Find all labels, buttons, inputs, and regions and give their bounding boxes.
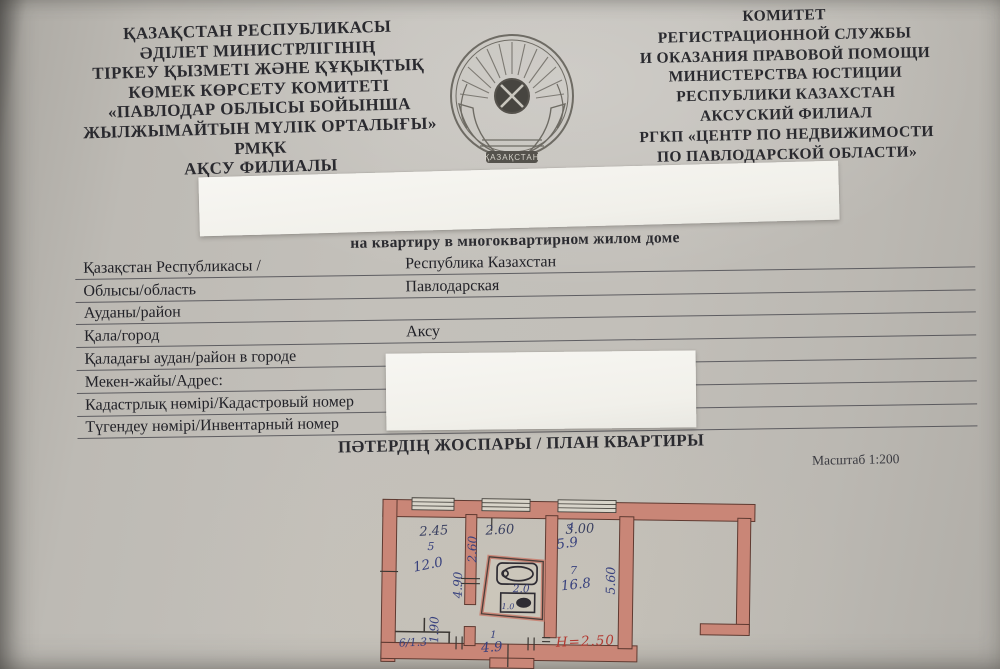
plan-interior-wall — [464, 626, 475, 645]
dim-top-1: 2.45 — [418, 523, 449, 540]
row-label: Қазақстан Республикасы / — [83, 257, 261, 277]
floor-plan-drawing: 2.45 2.60 3.00 5 12.0 4 5.9 7 16.8 2.0 1… — [378, 488, 770, 669]
row-label: Қала/город — [84, 327, 160, 346]
row-label: Мекен-жайы/Адрес: — [85, 372, 223, 392]
row-value: Павлодарская — [405, 277, 499, 296]
plan-adjacent-wall — [736, 518, 751, 632]
plan-interior-wall — [544, 516, 558, 638]
bath-area: 2.0 — [512, 583, 530, 595]
dim-left-upper: 2.60 — [465, 535, 479, 563]
ceiling-height-note: Н=2.50 — [555, 632, 616, 650]
row-label: Ауданы/район — [84, 304, 181, 323]
kazakhstan-coat-of-arms-icon: ҚАЗАҚСТАН — [437, 20, 587, 178]
row-value: Республика Казахстан — [405, 253, 556, 273]
plan-entry-stub — [490, 658, 534, 669]
row-value: Аксу — [406, 323, 440, 341]
dim-left-mid: 4.90 — [451, 571, 465, 599]
room6-label: 6/1.3 — [399, 635, 428, 649]
room4-number: 4 — [567, 522, 575, 533]
room7-area: 16.8 — [560, 575, 592, 594]
plan-windows — [412, 498, 616, 513]
plan-scale-note: Масштаб 1:200 — [812, 451, 900, 469]
redaction-slip-address — [386, 350, 697, 430]
row-label: Облысы/область — [83, 281, 196, 301]
plan-left-wall — [381, 499, 397, 661]
issuer-block-kazakh: ҚАЗАҚСТАН РЕСПУБЛИКАСЫ ӘДІЛЕТ МИНИСТРЛІГ… — [58, 15, 460, 183]
plan-adjacent-wall — [700, 624, 749, 636]
dim-hall-left: 1.90 — [427, 616, 441, 643]
row-label: Түгендеу нөмірі/Инвентарный номер — [85, 416, 339, 438]
dim-right: 5.60 — [603, 567, 618, 595]
toilet-area: 1.0 — [502, 602, 515, 611]
row-label: Кадастрлық нөмірі/Кадастровый номер — [85, 393, 354, 415]
hall-area: 4.9 — [480, 639, 504, 657]
room7-number: 7 — [570, 564, 577, 577]
emblem-banner-text: ҚАЗАҚСТАН — [485, 153, 540, 162]
room5-area: 12.0 — [412, 554, 445, 576]
row-label: Қаладағы аудан/район в городе — [84, 348, 296, 369]
issuer-block-russian: КОМИТЕТ РЕГИСТРАЦИОННОЙ СЛУЖБЫ И ОКАЗАНИ… — [596, 2, 975, 168]
room5-number: 5 — [427, 540, 434, 553]
document-photo: ҚАЗАҚСТАН РЕСПУБЛИКАСЫ ӘДІЛЕТ МИНИСТРЛІГ… — [0, 0, 1000, 669]
room4-area: 5.9 — [556, 534, 580, 553]
plan-right-wall — [618, 517, 634, 649]
dim-top-2: 2.60 — [484, 522, 515, 539]
